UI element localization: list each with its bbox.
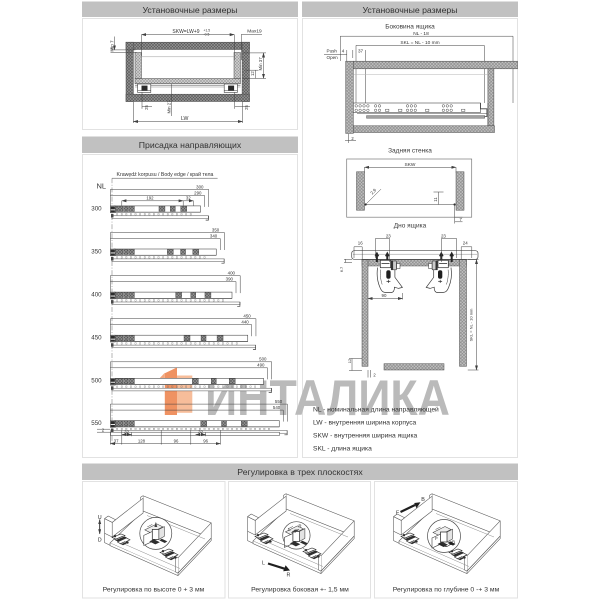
svg-text:390: 390 (226, 277, 234, 282)
svg-text:Присадка направляющих: Присадка направляющих (139, 140, 242, 150)
svg-text:400: 400 (91, 292, 102, 299)
svg-text:23: 23 (441, 233, 446, 238)
svg-text:Min 7: Min 7 (109, 40, 114, 52)
svg-text:6.7: 6.7 (339, 266, 344, 272)
svg-text:F: F (435, 536, 438, 541)
svg-text:Регулировка боковая +- 1,5 мм: Регулировка боковая +- 1,5 мм (251, 586, 349, 594)
svg-text:4: 4 (342, 49, 345, 54)
svg-text:32: 32 (186, 196, 191, 201)
svg-text:350: 350 (212, 227, 220, 232)
svg-text:500: 500 (259, 357, 267, 362)
svg-text:Дно ящика: Дно ящика (394, 223, 427, 230)
svg-text:SKL = NL - 10 mm: SKL = NL - 10 mm (400, 40, 439, 46)
svg-text:11: 11 (433, 197, 438, 202)
svg-text:Open: Open (327, 55, 339, 60)
svg-text:32: 32 (198, 429, 203, 434)
svg-text:96: 96 (174, 438, 179, 443)
svg-text:Krawędź korpusu / Body edge /: Krawędź korpusu / Body edge / край тела (117, 171, 214, 178)
svg-text:90: 90 (382, 293, 387, 298)
svg-text:Задняя стенка: Задняя стенка (388, 148, 432, 155)
svg-text:128: 128 (138, 438, 146, 443)
svg-text:400: 400 (228, 271, 236, 276)
svg-text:Push: Push (327, 49, 338, 54)
svg-text:SKW - внутренняя ширина ящика: SKW - внутренняя ширина ящика (313, 433, 418, 440)
svg-text:Боковина ящика: Боковина ящика (385, 24, 435, 31)
svg-text:LW: LW (181, 116, 188, 122)
svg-text:D: D (98, 538, 102, 544)
svg-text:25: 25 (244, 105, 249, 110)
svg-text:450: 450 (91, 335, 102, 342)
svg-text:R: R (287, 573, 291, 579)
svg-text:Установочные размеры: Установочные размеры (142, 5, 237, 15)
svg-text:LW - внутренняя ширина корпуса: LW - внутренняя ширина корпуса (313, 420, 417, 427)
svg-text:SKL = NL - 10 mm: SKL = NL - 10 mm (468, 308, 473, 341)
svg-text:Max19: Max19 (247, 29, 262, 35)
svg-text:16: 16 (358, 241, 363, 246)
svg-text:Min 37: Min 37 (258, 57, 263, 71)
svg-text:37: 37 (114, 438, 119, 443)
svg-text:-0.5: -0.5 (204, 33, 210, 37)
svg-text:192: 192 (146, 196, 154, 201)
svg-text:96: 96 (203, 438, 208, 443)
svg-text:340: 340 (210, 233, 218, 238)
svg-text:540: 540 (273, 405, 281, 410)
svg-text:Регулировка в трех плоскостях: Регулировка в трех плоскостях (237, 467, 363, 477)
svg-text:440: 440 (241, 320, 249, 325)
svg-text:SKW: SKW (405, 162, 416, 168)
svg-text:300: 300 (91, 205, 102, 212)
svg-text:Min 27: Min 27 (166, 100, 171, 114)
svg-text:37: 37 (358, 49, 364, 54)
svg-text:24: 24 (463, 241, 468, 246)
svg-text:23: 23 (386, 233, 391, 238)
svg-text:500: 500 (91, 378, 102, 385)
svg-text:SKW=LW+9: SKW=LW+9 (172, 29, 199, 35)
svg-text:350: 350 (91, 248, 102, 255)
svg-text:R: R (298, 524, 301, 529)
svg-text:550: 550 (275, 399, 283, 404)
svg-text:Регулировка по глубине 0 -+ 3: Регулировка по глубине 0 -+ 3 мм (393, 586, 500, 594)
svg-text:490: 490 (257, 363, 265, 368)
svg-text:450: 450 (243, 314, 251, 319)
svg-text:NL: NL (97, 182, 107, 191)
svg-text:NL - 18: NL - 18 (413, 31, 429, 37)
svg-text:U: U (98, 515, 102, 521)
svg-text:NL - номинальная длина направл: NL - номинальная длина направляющей (313, 406, 439, 414)
svg-text:Установочные размеры: Установочные размеры (362, 5, 457, 15)
svg-text:290: 290 (194, 190, 202, 195)
svg-text:300: 300 (196, 184, 204, 189)
svg-text:Регулировка по высоте 0 + 3 мм: Регулировка по высоте 0 + 3 мм (103, 587, 205, 594)
svg-text:12: 12 (347, 358, 352, 363)
svg-text:B: B (421, 497, 425, 503)
svg-text:25: 25 (144, 105, 149, 110)
svg-text:32: 32 (124, 429, 129, 434)
svg-text:12: 12 (250, 71, 255, 76)
svg-text:L: L (262, 561, 265, 567)
svg-text:550: 550 (91, 420, 102, 427)
svg-text:SKL - длина ящика: SKL - длина ящика (313, 446, 372, 453)
